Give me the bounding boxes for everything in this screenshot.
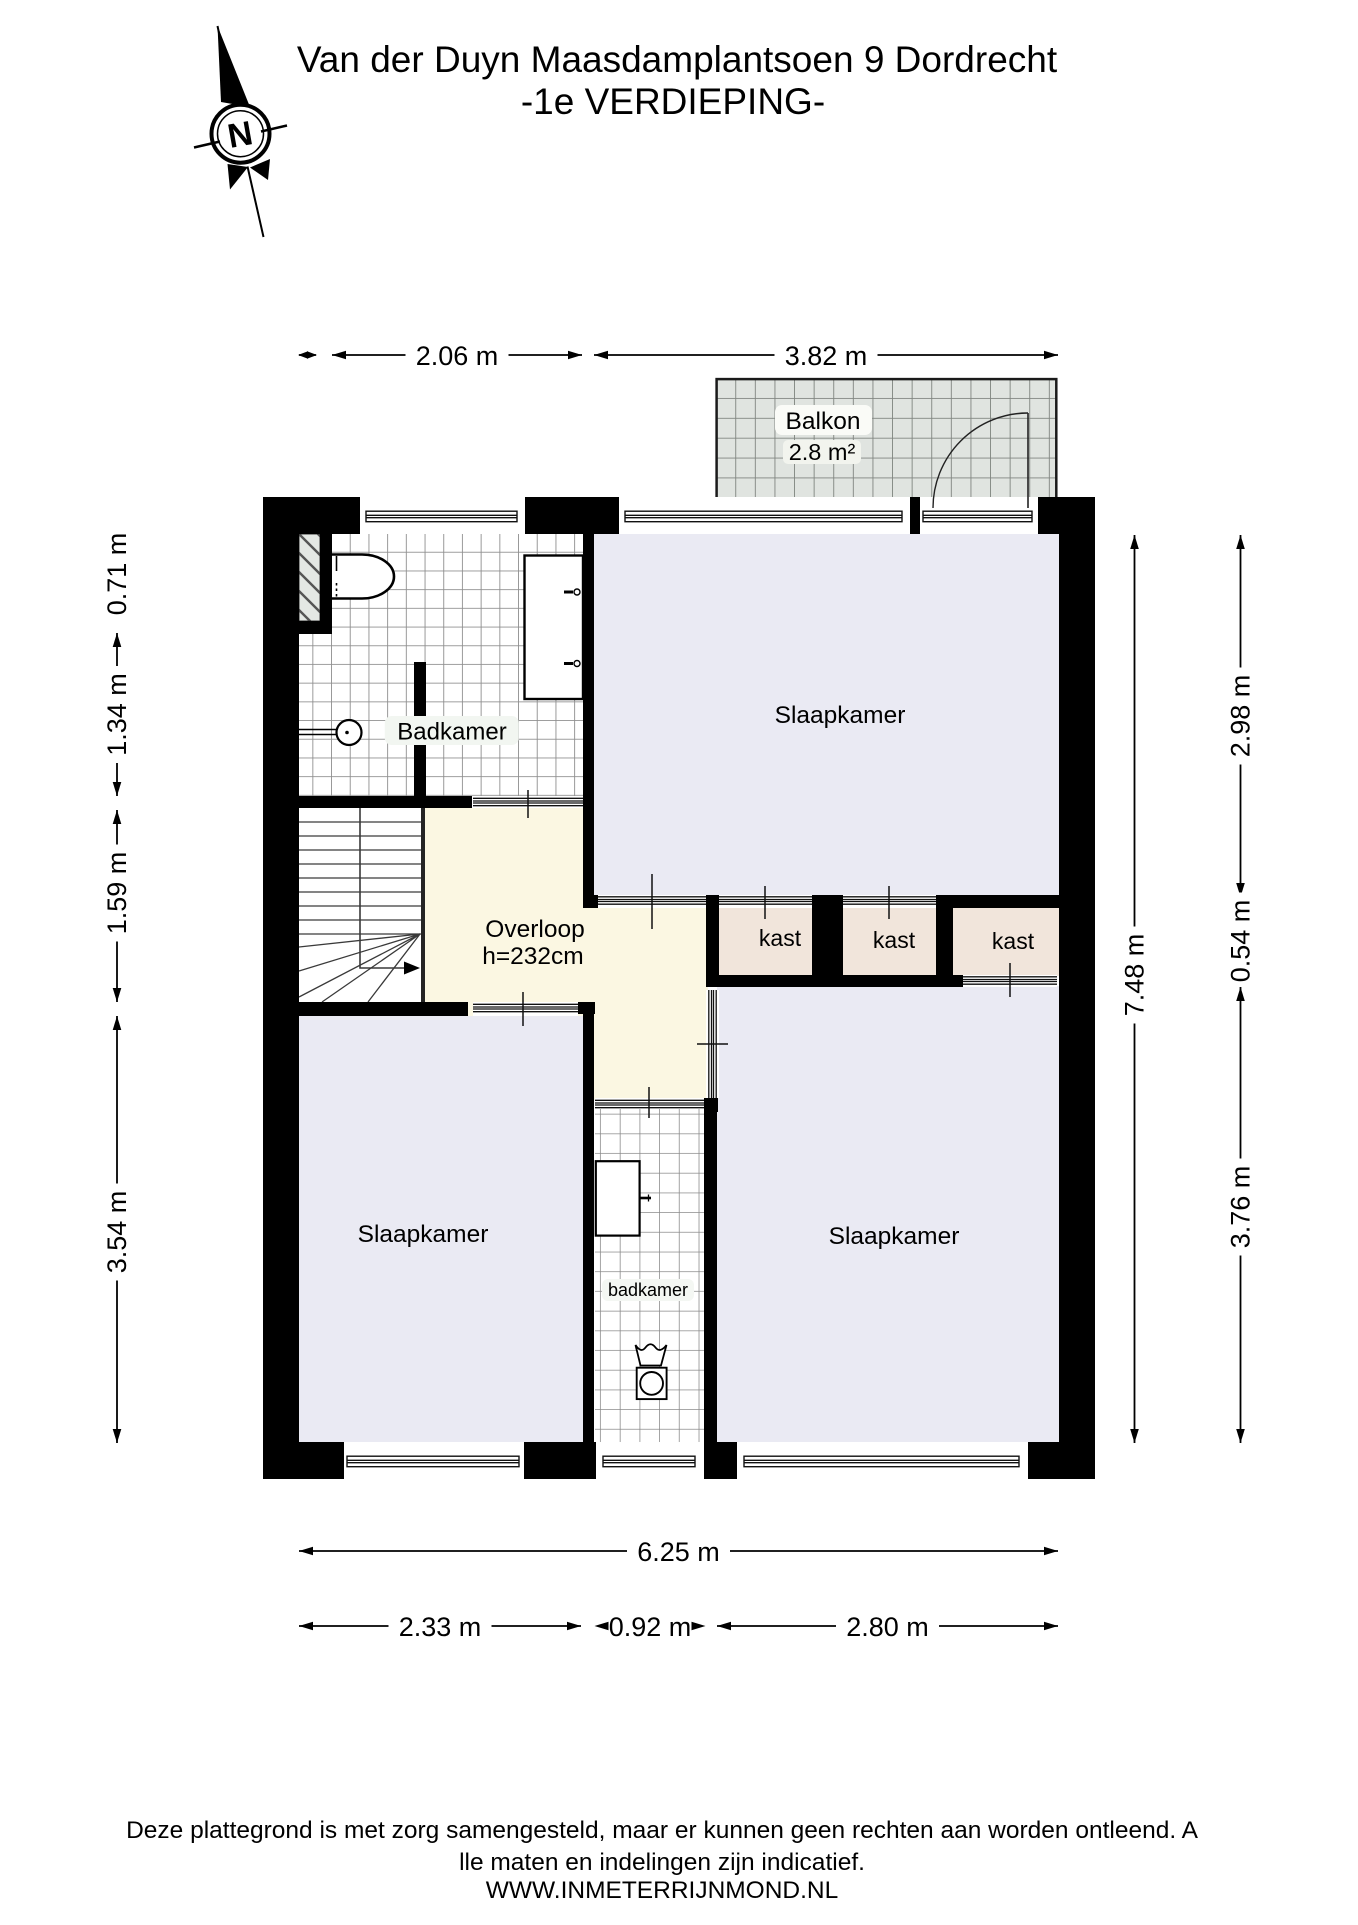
svg-text:3.82 m: 3.82 m — [785, 341, 868, 371]
svg-text:3.76 m: 3.76 m — [1226, 1166, 1256, 1249]
svg-text:kast: kast — [873, 927, 916, 953]
svg-text:Badkamer: Badkamer — [397, 719, 506, 746]
svg-text:3.54 m: 3.54 m — [102, 1191, 132, 1274]
svg-text:2.98 m: 2.98 m — [1226, 675, 1256, 758]
svg-text:0.71 m: 0.71 m — [102, 533, 132, 616]
svg-text:6.25 m: 6.25 m — [637, 1537, 720, 1567]
svg-text:0.92 m: 0.92 m — [609, 1612, 692, 1642]
svg-text:Deze plattegrond is met zorg s: Deze plattegrond is met zorg samengestel… — [126, 1817, 1199, 1844]
svg-text:kast: kast — [759, 925, 802, 951]
svg-text:2.33 m: 2.33 m — [399, 1612, 482, 1642]
svg-text:Van der Duyn Maasdamplantsoen: Van der Duyn Maasdamplantsoen 9 Dordrech… — [297, 39, 1058, 80]
svg-text:7.48 m: 7.48 m — [1120, 934, 1150, 1017]
svg-text:1.34 m: 1.34 m — [102, 673, 132, 756]
svg-text:kast: kast — [992, 928, 1035, 954]
svg-text:Slaapkamer: Slaapkamer — [829, 1223, 960, 1250]
svg-text:Balkon: Balkon — [786, 408, 861, 435]
svg-text:Overloop: Overloop — [485, 916, 584, 943]
svg-text:WWW.INMETERRIJNMOND.NL: WWW.INMETERRIJNMOND.NL — [486, 1877, 839, 1904]
svg-text:Slaapkamer: Slaapkamer — [775, 702, 906, 729]
svg-text:h=232cm: h=232cm — [482, 943, 583, 970]
svg-text:2.8 m²: 2.8 m² — [789, 439, 856, 465]
svg-text:0.54 m: 0.54 m — [1226, 900, 1256, 983]
svg-text:-1e VERDIEPING-: -1e VERDIEPING- — [521, 81, 825, 122]
svg-text:1.59 m: 1.59 m — [102, 852, 132, 935]
svg-text:2.06 m: 2.06 m — [416, 341, 499, 371]
svg-text:Slaapkamer: Slaapkamer — [358, 1221, 489, 1248]
svg-text:2.80 m: 2.80 m — [846, 1612, 929, 1642]
svg-text:badkamer: badkamer — [608, 1280, 688, 1300]
svg-text:lle maten en indelingen zijn i: lle maten en indelingen zijn indicatief. — [459, 1849, 865, 1876]
